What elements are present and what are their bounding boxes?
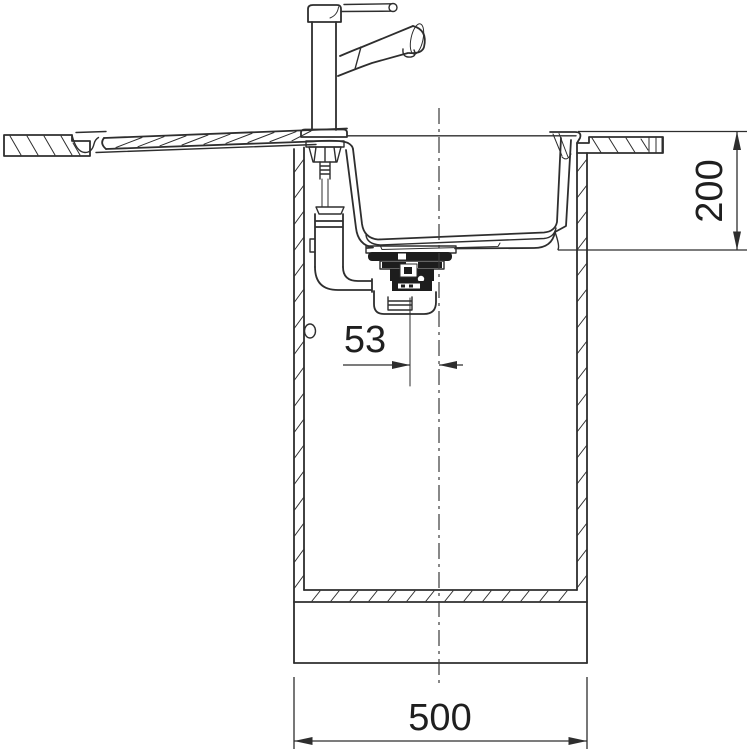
dim-500-label: 500 <box>408 697 471 739</box>
mounting-shank <box>320 162 330 179</box>
worktop-right-outline <box>577 137 663 153</box>
drain-gasket-notch <box>398 254 406 260</box>
technical-drawing-canvas: 200 53 500 <box>0 0 750 750</box>
rim-clip-right <box>553 134 571 159</box>
cabinet-left-wall-hatch <box>295 159 305 588</box>
rim-rolled-edge <box>76 132 106 133</box>
base-cabinet <box>294 148 587 664</box>
faucet-lever <box>341 4 391 12</box>
dim-53-arrow-left <box>439 361 457 369</box>
drain-lower-tick-2 <box>409 285 413 288</box>
worktop-right-break-lines <box>649 137 662 153</box>
dim-200-label: 200 <box>689 159 731 222</box>
overflow-elbow <box>315 267 372 292</box>
drain-assembly <box>366 246 456 314</box>
worktop-left <box>4 135 90 156</box>
dimension-500: 500 <box>294 677 587 749</box>
drain-clamp <box>388 297 412 310</box>
pipe-wall-clip <box>305 324 316 338</box>
dim-200-arrow-down <box>733 232 741 251</box>
dimension-53: 53 <box>343 319 463 369</box>
dim-53-label: 53 <box>344 319 386 361</box>
overflow-funnel <box>316 207 344 214</box>
cabinet-right-wall-hatch <box>577 159 587 588</box>
sink-section-drawing: 200 53 500 <box>0 0 750 750</box>
dim-200-arrow-up <box>733 132 741 151</box>
bowl-outer-bottom-right <box>455 140 571 249</box>
drain-lower-tick-1 <box>401 285 405 288</box>
rim-clip-left <box>72 135 99 153</box>
drainboard-left-cap <box>102 138 106 149</box>
mounting-nut <box>309 147 341 162</box>
dim-53-arrow-right <box>392 361 410 369</box>
faucet-body <box>312 22 336 130</box>
drain-body-core <box>404 267 412 274</box>
faucet-spout <box>338 26 413 76</box>
worktop-right <box>577 137 663 153</box>
bowl-outer-right-corner <box>555 232 559 250</box>
drain-flange-outline <box>366 246 456 253</box>
faucet-mounting <box>306 141 344 207</box>
bowl-inner-surface <box>353 138 561 240</box>
faucet-lever-joint <box>330 7 339 18</box>
sink-drainboard <box>72 129 580 159</box>
sink-bowl <box>346 138 571 250</box>
worktop-right-hatch <box>592 138 648 153</box>
worktop-left-outline <box>4 135 90 156</box>
dim-500-arrow-right <box>569 737 588 745</box>
overflow-body <box>315 214 343 267</box>
supply-hoses <box>322 179 328 207</box>
faucet-spout-tip <box>409 26 425 53</box>
faucet <box>301 4 426 138</box>
dim-500-arrow-left <box>294 737 313 745</box>
faucet-lever-end-cap <box>389 4 397 12</box>
worktop-left-hatch <box>10 136 80 155</box>
